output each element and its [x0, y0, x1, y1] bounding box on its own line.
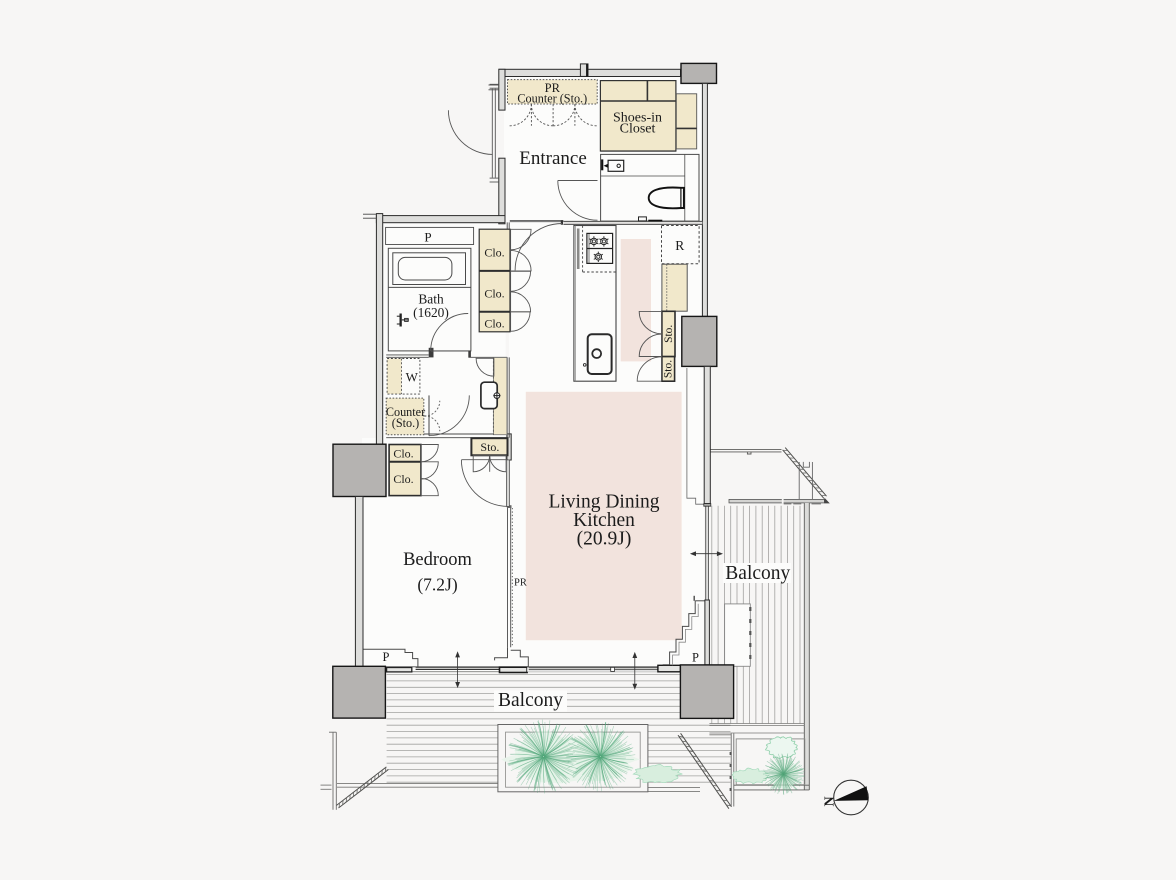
svg-text:N: N [823, 796, 838, 806]
svg-text:Clo.: Clo. [484, 316, 504, 330]
svg-text:Clo.: Clo. [393, 472, 413, 486]
svg-text:Closet: Closet [620, 121, 656, 136]
svg-text:W: W [406, 370, 419, 385]
svg-text:Clo.: Clo. [484, 245, 504, 259]
svg-text:Balcony: Balcony [498, 690, 563, 711]
svg-text:Sto.: Sto. [663, 325, 675, 343]
svg-text:Sto.: Sto. [662, 360, 674, 378]
svg-text:P: P [424, 230, 431, 245]
svg-text:P: P [383, 650, 390, 664]
svg-text:PR: PR [514, 577, 527, 588]
svg-text:Clo.: Clo. [393, 446, 413, 460]
svg-text:(1620): (1620) [413, 305, 449, 320]
svg-text:Clo.: Clo. [484, 286, 504, 300]
svg-text:(20.9J): (20.9J) [577, 529, 632, 550]
svg-text:Bedroom: Bedroom [403, 550, 472, 570]
svg-text:P: P [692, 650, 699, 664]
svg-text:(7.2J): (7.2J) [417, 575, 458, 595]
svg-text:Entrance: Entrance [519, 148, 587, 169]
svg-text:Sto.: Sto. [480, 440, 499, 454]
svg-text:Balcony: Balcony [725, 563, 790, 584]
svg-text:R: R [675, 238, 684, 253]
svg-text:Counter (Sto.): Counter (Sto.) [517, 91, 587, 105]
svg-text:(Sto.): (Sto.) [392, 416, 419, 430]
